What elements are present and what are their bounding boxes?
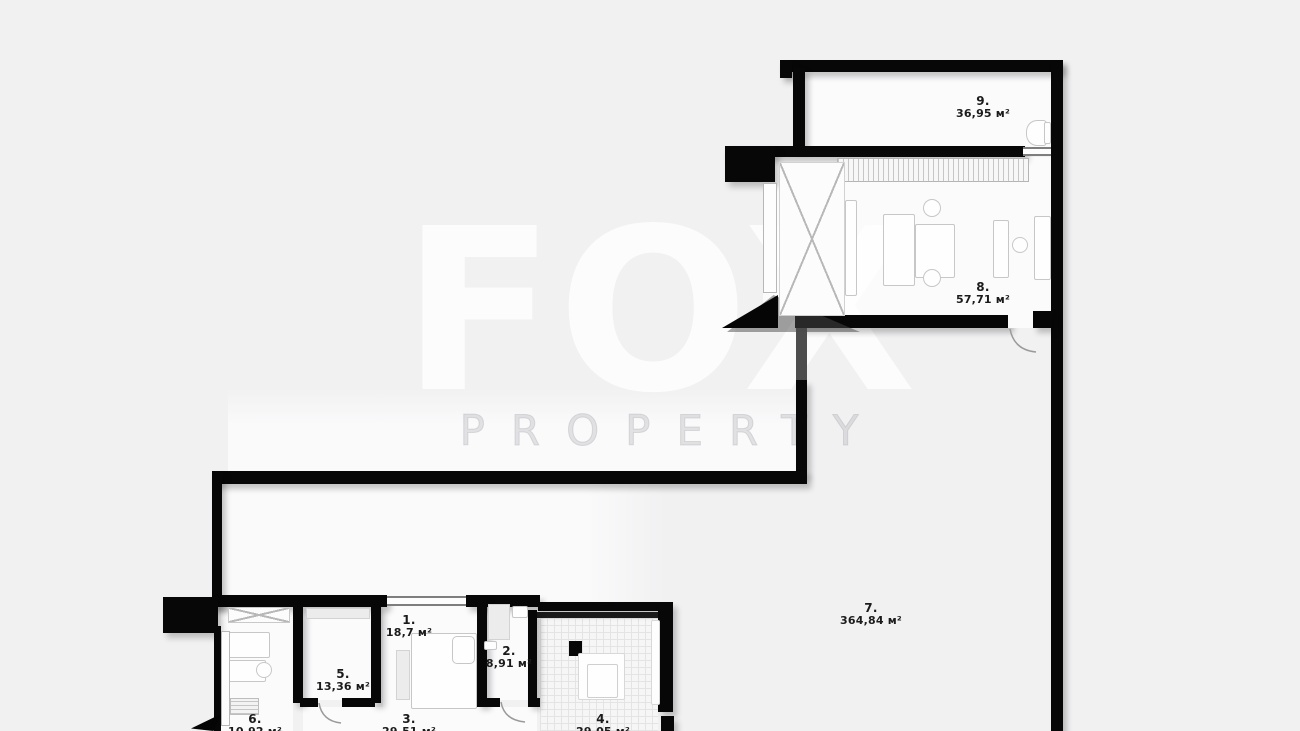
wall (793, 68, 805, 148)
wall (293, 605, 303, 703)
wardrobe-strip (221, 631, 230, 726)
wall (661, 716, 674, 731)
window (1023, 147, 1051, 156)
room-area: 18,7 м² (386, 626, 432, 639)
wardrobe-mirror (779, 162, 845, 316)
room-area: 10,92 м² (228, 725, 282, 731)
window (387, 596, 466, 606)
room-area: 8,91 м² (486, 657, 532, 670)
wall (780, 60, 792, 78)
room-number: 9. (956, 95, 1010, 107)
room-area: 13,36 м² (316, 680, 370, 693)
wardrobe (837, 158, 1029, 182)
room-area: 364,84 м² (840, 614, 902, 627)
wall (477, 698, 500, 707)
wall (780, 60, 1062, 72)
room-3-label: 3. 29,51 м² (382, 713, 436, 731)
sofa (883, 214, 915, 286)
room-4-label: 4. 29,05 м² (576, 713, 630, 731)
wall (163, 597, 218, 633)
room-5-label: 5. 13,36 м² (316, 668, 370, 693)
side-table (256, 662, 272, 678)
room-number: 7. (840, 602, 902, 614)
room-number: 2. (486, 645, 532, 657)
wall (725, 146, 775, 182)
wall-shadow-segment (796, 328, 807, 382)
toilet-tank (1044, 122, 1051, 144)
room-6-label: 6. 10,92 м² (228, 713, 282, 731)
curtain (651, 620, 660, 705)
wall (342, 698, 375, 707)
wall (658, 602, 673, 712)
room-7-label: 7. 364,84 м² (840, 602, 902, 627)
wall (538, 602, 662, 611)
tv-panel (845, 200, 857, 296)
lower-patio-floor (222, 484, 665, 607)
room-9-label: 9. 36,95 м² (956, 95, 1010, 120)
wall (1033, 311, 1052, 328)
bed (226, 632, 270, 658)
wardrobe (396, 650, 410, 700)
wall (300, 698, 318, 707)
wall (371, 605, 381, 703)
armchair (923, 199, 941, 217)
room-number: 8. (956, 281, 1010, 293)
cabinet (1034, 216, 1051, 280)
wall (212, 471, 807, 484)
room-area: 29,05 м² (576, 725, 630, 731)
shelf (228, 607, 290, 623)
floor-plan: FOX PROPERTY (0, 0, 1300, 731)
counter (306, 608, 370, 619)
room-9-floor (803, 70, 1051, 147)
room-area: 36,95 м² (956, 107, 1010, 120)
door-opening (1008, 315, 1033, 328)
shower (488, 604, 510, 640)
room-1-label: 1. 18,7 м² (386, 614, 432, 639)
door-leaf (763, 183, 777, 293)
room-2-label: 2. 8,91 м² (486, 645, 532, 670)
desk (993, 220, 1009, 278)
room-number: 1. (386, 614, 432, 626)
room-number: 5. (316, 668, 370, 680)
sink (512, 606, 528, 618)
window-rail (536, 612, 664, 618)
armchair (923, 269, 941, 287)
room-number: 4. (576, 713, 630, 725)
room-8-label: 8. 57,71 м² (956, 281, 1010, 306)
wall (212, 471, 222, 607)
wall (1051, 60, 1063, 731)
pillow (452, 636, 475, 664)
room-area: 29,51 м² (382, 725, 436, 731)
watermark-tagline: PROPERTY (460, 410, 885, 452)
wall (528, 698, 540, 707)
table-top (587, 664, 618, 698)
room-number: 3. (382, 713, 436, 725)
chair (1012, 237, 1028, 253)
room-number: 6. (228, 713, 282, 725)
wall (796, 380, 807, 475)
door-swing-arc (1010, 329, 1036, 352)
room-area: 57,71 м² (956, 293, 1010, 306)
